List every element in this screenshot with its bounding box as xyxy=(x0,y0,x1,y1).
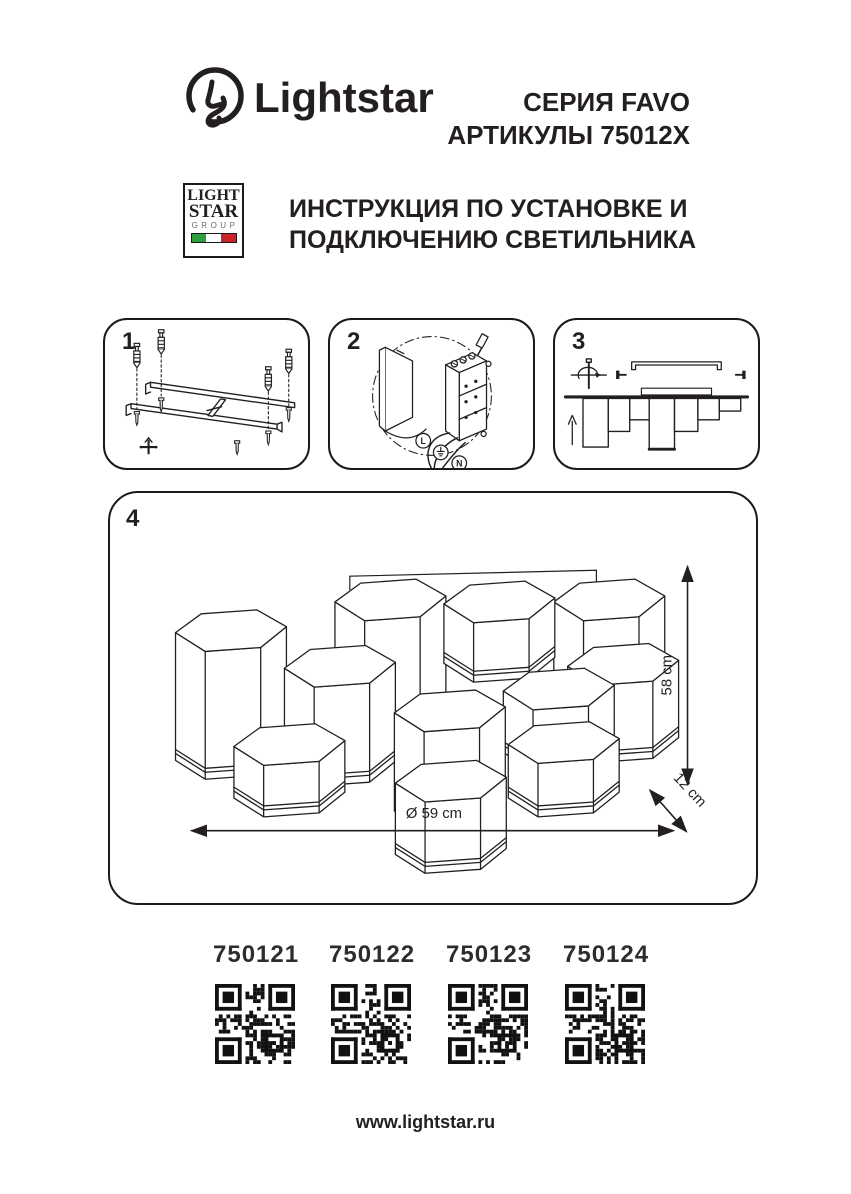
step1-mounting-illustration xyxy=(105,320,308,468)
series-header: СЕРИЯ FAVO АРТИКУЛЫ 75012X xyxy=(390,86,690,152)
article-750123: 750123 xyxy=(446,941,530,1069)
wire-label-l: L xyxy=(421,436,427,446)
title-line1: ИНСТРУКЦИЯ ПО УСТАНОВКЕ И xyxy=(289,194,696,225)
article-code: 750124 xyxy=(563,941,647,969)
height-label: 58 cm xyxy=(660,655,676,695)
article-code: 750123 xyxy=(446,941,530,969)
depth-label: 12 cm xyxy=(670,770,709,810)
depth-arrow xyxy=(650,790,687,832)
series-name: СЕРИЯ FAVO xyxy=(390,86,690,119)
italian-flag xyxy=(191,233,237,243)
step-3-number: 3 xyxy=(572,328,585,356)
group-logo-star: STAR xyxy=(185,203,242,220)
up-arrow-icon xyxy=(568,415,576,444)
lightstar-bulb-icon xyxy=(181,62,253,144)
flag-green xyxy=(192,234,207,242)
qr-code xyxy=(448,984,528,1064)
instruction-sheet: Lightstar СЕРИЯ FAVO АРТИКУЛЫ 75012X LIG… xyxy=(0,0,851,1194)
honeycomb-lamp-drawing: 58 cm 12 cm Ø 59 cm xyxy=(110,493,756,903)
step2-wiring-illustration: L N xyxy=(330,320,533,468)
screw-direction-icon xyxy=(140,438,158,454)
step-1-number: 1 xyxy=(122,328,135,356)
flag-red xyxy=(221,234,236,242)
article-750121: 750121 xyxy=(213,941,297,1069)
qr-code xyxy=(215,984,295,1064)
wire-label-n: N xyxy=(456,459,462,468)
page-title: ИНСТРУКЦИЯ ПО УСТАНОВКЕ И ПОДКЛЮЧЕНИЮ СВ… xyxy=(289,194,696,256)
step-3-box: 3 xyxy=(553,318,760,470)
step-2-box: L N 2 xyxy=(328,318,535,470)
article-code: 750121 xyxy=(213,941,297,969)
flag-white xyxy=(206,234,221,242)
step-4-number: 4 xyxy=(126,505,139,533)
step-2-number: 2 xyxy=(347,328,360,356)
dimensions-diagram-box: 58 cm 12 cm Ø 59 cm 4 xyxy=(108,491,758,905)
step-1-box: 1 xyxy=(103,318,310,470)
qr-code xyxy=(565,984,645,1064)
article-750124: 750124 xyxy=(563,941,647,1069)
step3-fixing-illustration xyxy=(555,320,758,468)
title-line2: ПОДКЛЮЧЕНИЮ СВЕТИЛЬНИКА xyxy=(289,225,696,256)
qr-code xyxy=(331,984,411,1064)
article-750122: 750122 xyxy=(329,941,413,1069)
website-url: www.lightstar.ru xyxy=(0,1112,851,1133)
diameter-label: Ø 59 cm xyxy=(406,806,462,822)
series-articles: АРТИКУЛЫ 75012X xyxy=(390,119,690,152)
article-code: 750122 xyxy=(329,941,413,969)
group-logo-group: GROUP xyxy=(185,221,242,231)
lightstar-group-logo: LIGHT STAR GROUP xyxy=(183,183,244,258)
